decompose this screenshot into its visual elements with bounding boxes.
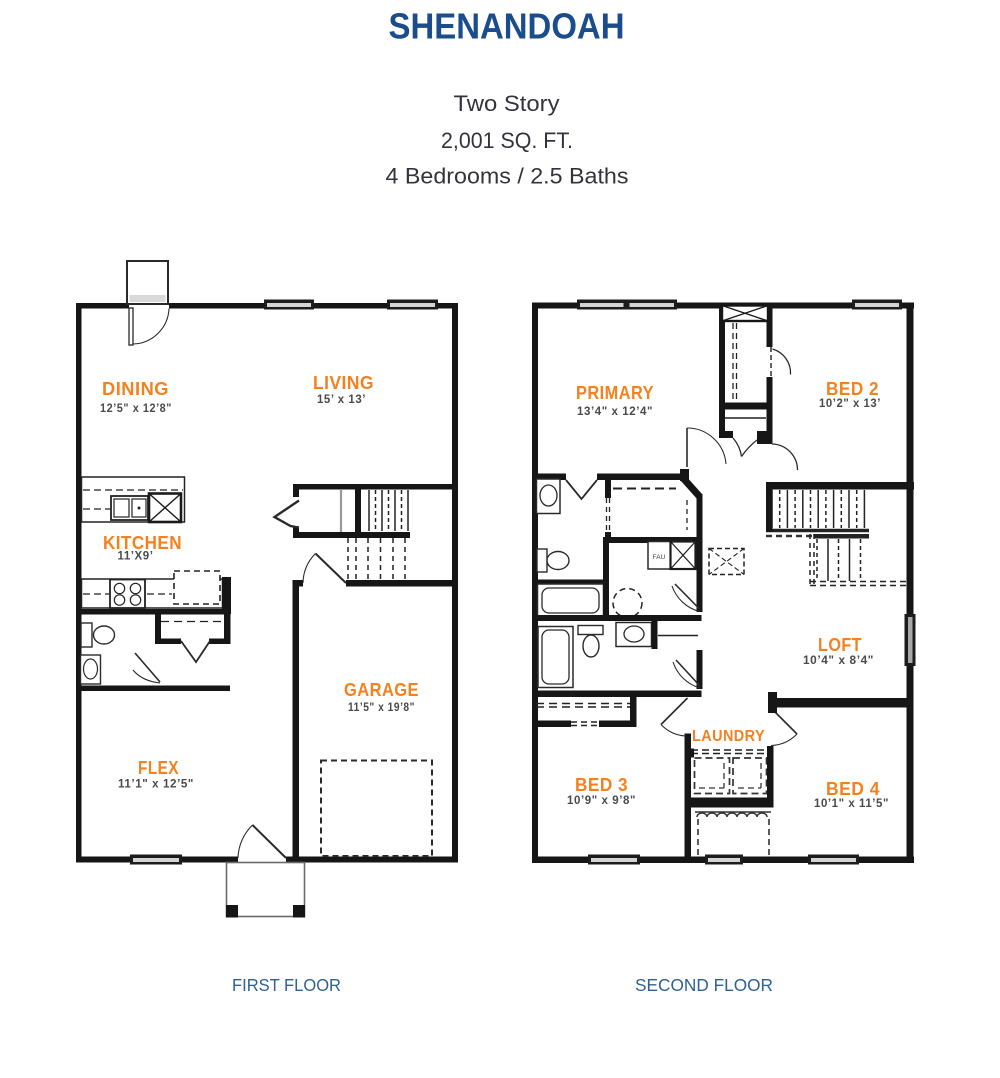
svg-text:BED 3: BED 3 bbox=[575, 775, 628, 795]
svg-text:10’1" x 11’5": 10’1" x 11’5" bbox=[814, 796, 889, 810]
svg-text:FAU: FAU bbox=[653, 554, 666, 561]
svg-text:PRIMARY: PRIMARY bbox=[576, 383, 654, 403]
svg-text:11’X9’: 11’X9’ bbox=[118, 549, 154, 563]
svg-text:11’1" x 12’5": 11’1" x 12’5" bbox=[118, 777, 194, 791]
svg-text:10’2" x 13’: 10’2" x 13’ bbox=[819, 396, 881, 410]
svg-text:10’4" x 8’4": 10’4" x 8’4" bbox=[803, 653, 874, 667]
svg-text:Two Story: Two Story bbox=[454, 91, 561, 116]
svg-text:13’4" x 12’4": 13’4" x 12’4" bbox=[577, 404, 653, 418]
svg-text:SECOND FLOOR: SECOND FLOOR bbox=[635, 975, 773, 995]
svg-text:10’9" x 9’8": 10’9" x 9’8" bbox=[567, 793, 636, 807]
svg-text:11’5" x 19’8": 11’5" x 19’8" bbox=[348, 700, 415, 714]
svg-text:12’5" x 12’8": 12’5" x 12’8" bbox=[100, 401, 172, 415]
svg-text:2,001 SQ. FT.: 2,001 SQ. FT. bbox=[441, 128, 573, 153]
svg-text:LAUNDRY: LAUNDRY bbox=[692, 728, 765, 745]
svg-text:LOFT: LOFT bbox=[818, 635, 862, 655]
svg-text:DINING: DINING bbox=[102, 379, 169, 399]
svg-text:FIRST FLOOR: FIRST FLOOR bbox=[232, 975, 341, 995]
svg-text:4 Bedrooms / 2.5 Baths: 4 Bedrooms / 2.5 Baths bbox=[386, 164, 629, 189]
svg-text:FLEX: FLEX bbox=[138, 758, 179, 778]
svg-text:15’ x 13’: 15’ x 13’ bbox=[317, 392, 366, 406]
svg-text:LIVING: LIVING bbox=[313, 373, 374, 393]
svg-text:SHENANDOAH: SHENANDOAH bbox=[389, 6, 625, 47]
svg-text:GARAGE: GARAGE bbox=[344, 680, 419, 700]
